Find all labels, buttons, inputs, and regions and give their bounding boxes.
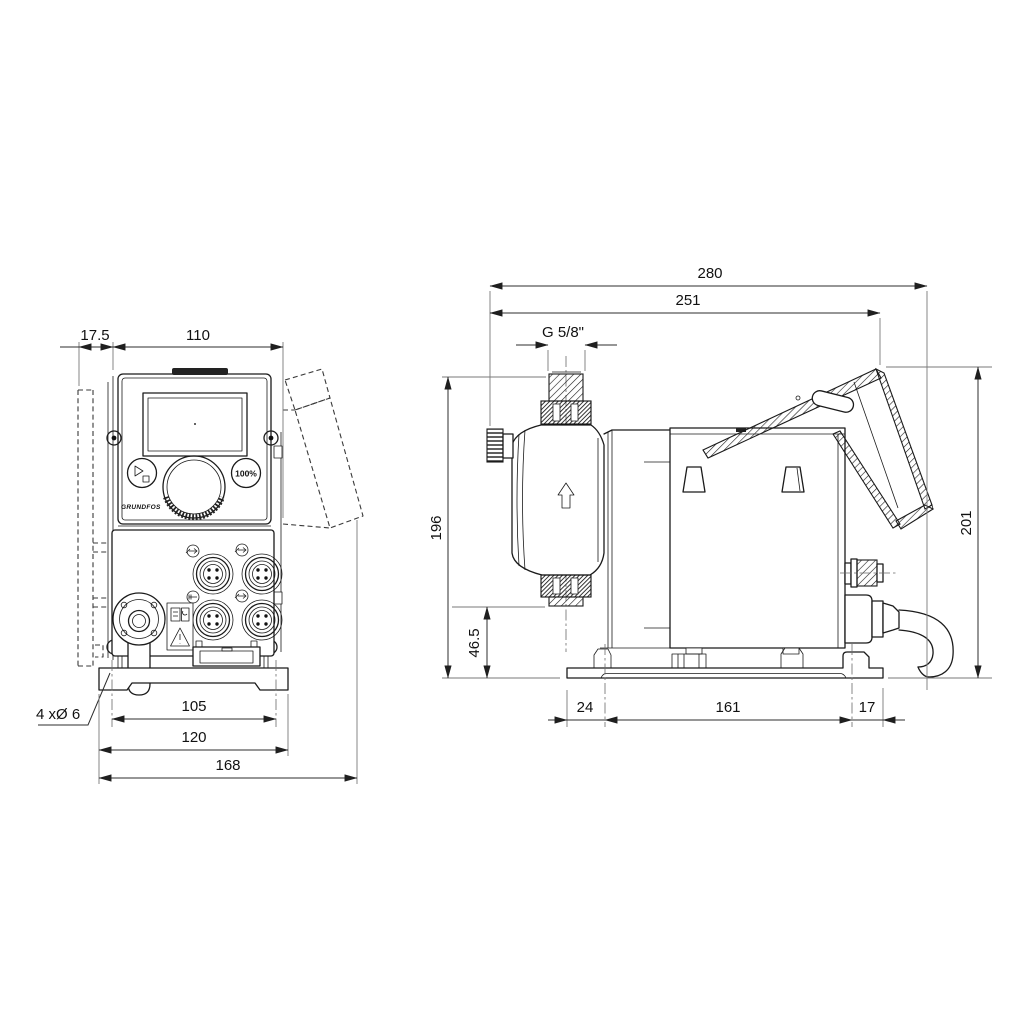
pump-housing: [670, 428, 845, 654]
dim-unit-width: 110: [186, 327, 210, 344]
display-cursor-dot: [194, 423, 196, 425]
dim-suction-height: 46.5: [466, 628, 483, 657]
motor-adapter: [600, 430, 670, 648]
side-view: 280 251 G 5/8" 196 46.5 201 24 161: [428, 265, 992, 727]
dim-overall-height: 201: [958, 510, 975, 535]
top-tab: [172, 368, 228, 375]
hole-callout: 4 xØ 6: [36, 706, 80, 723]
dosing-head: [487, 372, 604, 606]
dim-body-depth: 251: [675, 292, 700, 309]
suction-valve: [541, 575, 591, 606]
dim-overall-depth: 280: [697, 265, 722, 282]
side-m12-connector: [840, 559, 897, 587]
thread-size-label: G 5/8": [542, 324, 584, 341]
drawing-canvas: 100% GRUNDFOS: [0, 0, 1024, 1024]
brand-logo: GRUNDFOS: [121, 504, 161, 511]
dim-overall-width: 168: [215, 757, 240, 774]
power-cable: [899, 610, 953, 677]
warning-label: [167, 603, 193, 650]
wall-plate-dashed: [78, 390, 109, 666]
dim-base-hole-spacing: 161: [715, 699, 740, 716]
dim-base-rear-offset: 17: [859, 699, 876, 716]
technical-drawing: 100% GRUNDFOS: [0, 0, 1024, 1024]
front-view: 100% GRUNDFOS: [36, 327, 363, 784]
dim-height-to-discharge: 196: [428, 515, 445, 540]
control-cube-dashed: [283, 369, 363, 528]
discharge-valve: [541, 372, 591, 424]
percent-button-label: 100%: [235, 469, 257, 479]
dim-wall-offset: 17.5: [80, 327, 109, 344]
dim-base-front-offset: 24: [577, 699, 594, 716]
vent-valve: [487, 429, 513, 462]
dim-base-width: 120: [181, 729, 206, 746]
dim-hole-spacing-front: 105: [181, 698, 206, 715]
control-panel: 100% GRUNDFOS: [118, 368, 271, 524]
